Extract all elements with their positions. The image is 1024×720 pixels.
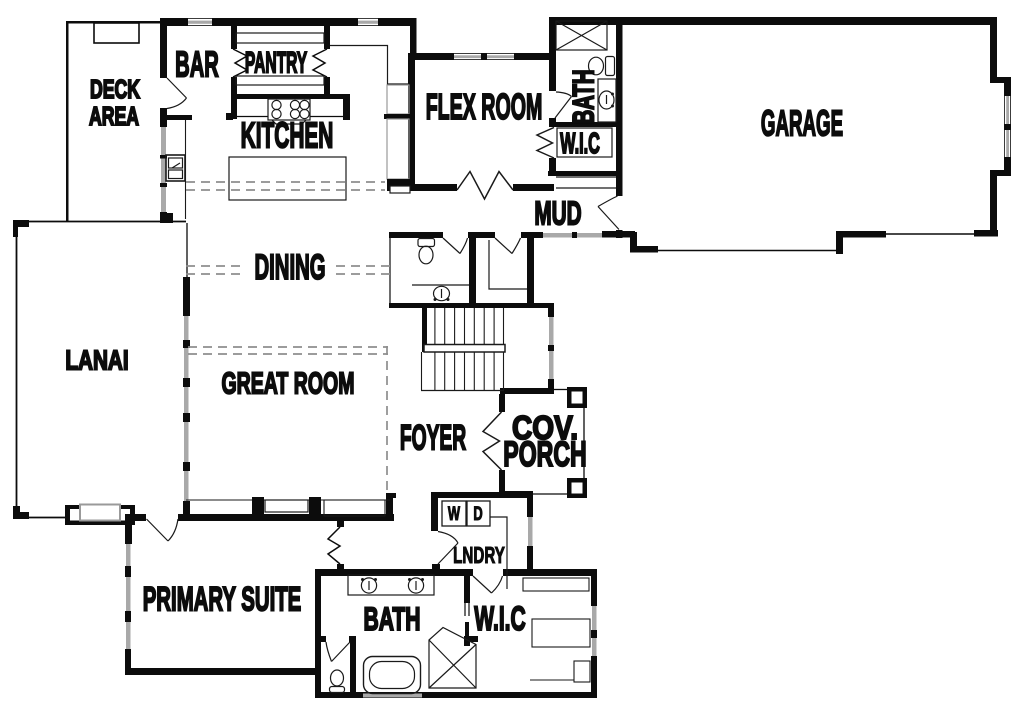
svg-text:BATH: BATH bbox=[363, 601, 420, 638]
svg-text:W.I.C: W.I.C bbox=[474, 599, 525, 637]
svg-text:DECK: DECK bbox=[90, 74, 140, 103]
svg-text:D: D bbox=[473, 503, 483, 524]
svg-text:GARAGE: GARAGE bbox=[761, 104, 843, 144]
svg-text:W.I.C: W.I.C bbox=[560, 127, 600, 159]
svg-text:BAR: BAR bbox=[175, 46, 219, 85]
svg-text:KITCHEN: KITCHEN bbox=[241, 116, 334, 156]
svg-text:W: W bbox=[448, 503, 461, 524]
svg-text:GREAT ROOM: GREAT ROOM bbox=[221, 367, 354, 401]
svg-text:BATH: BATH bbox=[568, 69, 601, 124]
svg-text:FLEX ROOM: FLEX ROOM bbox=[426, 88, 543, 128]
svg-text:MUD: MUD bbox=[534, 194, 581, 231]
svg-text:AREA: AREA bbox=[89, 101, 139, 130]
svg-text:LANAI: LANAI bbox=[65, 346, 128, 377]
svg-text:PRIMARY SUITE: PRIMARY SUITE bbox=[143, 580, 302, 618]
svg-text:DINING: DINING bbox=[254, 248, 325, 287]
svg-text:FOYER: FOYER bbox=[400, 417, 466, 457]
svg-text:PORCH: PORCH bbox=[503, 436, 586, 475]
svg-text:LNDRY: LNDRY bbox=[453, 543, 505, 569]
svg-text:PANTRY: PANTRY bbox=[245, 46, 307, 80]
